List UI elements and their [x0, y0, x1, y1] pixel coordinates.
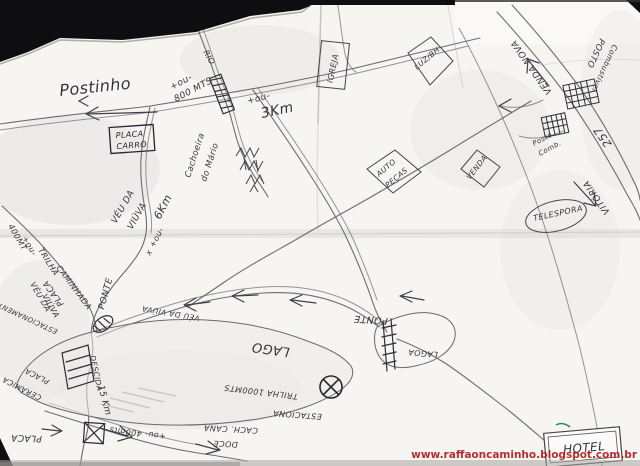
blog-watermark: www.raffaoncaminho.blogspot.com.br	[411, 449, 638, 461]
map-canvas: PLACA CARRO IGREJA LUZ/BH AUTO PEÇAS VEN…	[0, 0, 640, 466]
label-placa-bottom: PLACA	[11, 432, 42, 443]
label-cach-cana-b: DOCE	[212, 439, 238, 449]
scanned-hand-drawn-map: PLACA CARRO IGREJA LUZ/BH AUTO PEÇAS VEN…	[0, 0, 640, 466]
